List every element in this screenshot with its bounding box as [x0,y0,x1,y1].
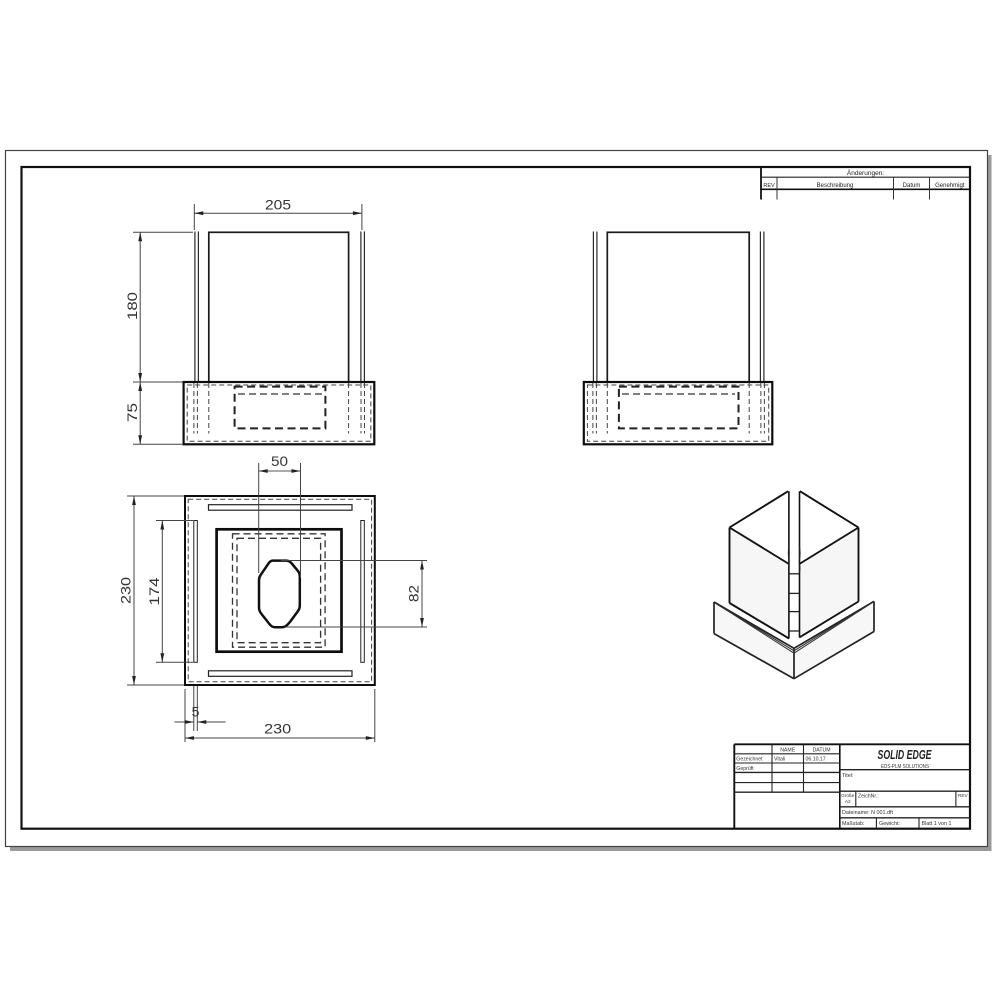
svg-text:Gezeichnet: Gezeichnet [736,757,763,763]
svg-text:ZeichNr.:: ZeichNr.: [858,794,879,800]
svg-text:Änderungen:: Änderungen: [847,169,884,177]
svg-text:Vitali: Vitali [774,757,785,763]
svg-text:NAME: NAME [780,747,796,753]
svg-text:5: 5 [192,704,200,720]
svg-text:180: 180 [124,292,140,320]
svg-text:Dateiname: N 001.dft: Dateiname: N 001.dft [842,810,893,816]
svg-text:Maßstab:: Maßstab: [842,821,864,827]
svg-text:Geprüft: Geprüft [736,766,754,772]
svg-text:Gewicht:: Gewicht: [879,821,900,827]
svg-text:Datum: Datum [903,183,921,189]
svg-text:205: 205 [265,197,291,213]
svg-text:82: 82 [406,585,422,602]
svg-text:50: 50 [271,453,288,469]
svg-text:SOLID EDGE: SOLID EDGE [878,748,932,762]
svg-text:230: 230 [118,577,134,604]
svg-text:A2: A2 [845,799,851,805]
svg-text:Größe: Größe [841,793,855,798]
svg-text:06.10.17: 06.10.17 [806,757,826,763]
svg-text:174: 174 [146,577,162,605]
svg-text:Titel:: Titel: [842,773,853,779]
svg-text:Blatt 1 von 1: Blatt 1 von 1 [922,821,952,827]
svg-text:DATUM: DATUM [813,747,831,753]
svg-text:230: 230 [264,721,291,737]
svg-text:EDS-PLM SOLUTIONS: EDS-PLM SOLUTIONS [881,764,929,770]
svg-text:REV: REV [958,793,969,799]
svg-text:Genehmigt: Genehmigt [935,183,965,189]
svg-text:Beschreibung: Beschreibung [817,183,854,189]
svg-text:REV: REV [763,183,775,189]
svg-text:75: 75 [124,403,140,422]
